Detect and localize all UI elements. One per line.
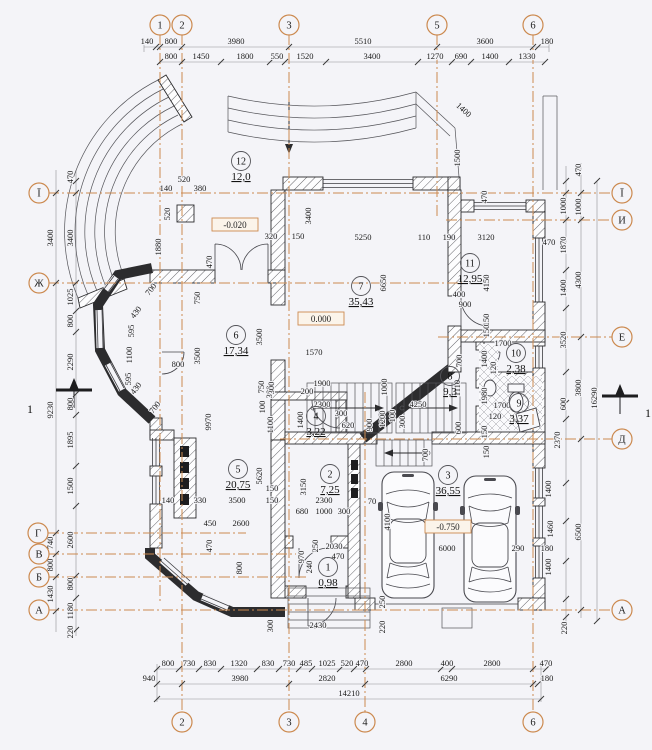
dim-label: 2800: [484, 658, 501, 668]
labels-layer: 1408003980551036001808001450180055015203…: [27, 15, 651, 732]
svg-text:35,43: 35,43: [349, 296, 374, 308]
entry-direction-arrow: [285, 100, 293, 154]
dim-label: 120: [488, 362, 498, 375]
dim-label: 800: [65, 315, 75, 328]
dim-label: 800: [172, 359, 185, 369]
axis-bubble-1: 1: [150, 15, 170, 35]
dim-label: 1000: [558, 198, 568, 215]
dim-label: 1870: [558, 237, 568, 254]
dim-label: 800: [65, 578, 75, 591]
svg-text:Б: Б: [36, 573, 42, 584]
dim-label: 595: [123, 373, 133, 386]
window-garage-east-2: [536, 506, 543, 538]
dim-label: 3400: [65, 230, 75, 247]
dim-label: 1400: [543, 559, 553, 576]
dim-label: 940: [143, 673, 156, 683]
dim-label: 5620: [254, 468, 264, 485]
axis-bubble-6: 6: [523, 15, 543, 35]
axis-bubble-2: 2: [172, 15, 192, 35]
room-label-12: 1212,0: [231, 152, 251, 184]
room-label-5: 520,75: [226, 460, 251, 492]
dim-label: 700: [420, 449, 430, 462]
dim-label: 1570: [306, 347, 323, 357]
dim-label: 220: [559, 622, 569, 635]
svg-text:5: 5: [434, 21, 439, 32]
svg-text:1: 1: [326, 563, 331, 574]
dim-label: 900: [459, 299, 472, 309]
dim-label: 380: [194, 183, 207, 193]
dim-label: 1320: [231, 658, 248, 668]
dim-label: 250: [377, 596, 387, 609]
dim-label: 800: [165, 51, 178, 61]
garage-threshold: [442, 608, 472, 628]
svg-text:Ї: Ї: [620, 188, 624, 200]
svg-text:6: 6: [234, 331, 239, 342]
dim-label: 1900: [314, 378, 331, 388]
svg-text:0,98: 0,98: [318, 577, 338, 589]
dim-label: 1270: [427, 51, 444, 61]
dim-label: 400: [441, 658, 454, 668]
dim-label: 120: [489, 411, 502, 421]
svg-text:Ї: Ї: [37, 188, 41, 200]
dim-label: 800: [234, 562, 244, 575]
dim-label: 3400: [45, 230, 55, 247]
dim-label: 1400: [558, 280, 568, 297]
svg-text:-0.750: -0.750: [436, 522, 460, 532]
axis-bubble-А: А: [29, 600, 49, 620]
dim-label: 700: [454, 355, 464, 368]
dim-label: 220: [65, 626, 75, 639]
dim-label: 6500: [573, 524, 583, 541]
dim-label: 320: [265, 231, 278, 241]
svg-text:5: 5: [236, 465, 241, 476]
dim-label: 1400: [295, 412, 305, 429]
dim-label: 240: [304, 561, 314, 574]
wall-hall-west-a: [271, 190, 285, 270]
dim-label: 330: [194, 495, 207, 505]
dim-label: 1520: [297, 51, 314, 61]
dim-label: 140: [162, 495, 175, 505]
dim-label: 5510: [355, 36, 372, 46]
room-label-2: 27,25: [320, 465, 340, 497]
svg-text:А: А: [618, 606, 626, 617]
room-label-3: 336,55: [436, 466, 461, 498]
dim-label: 2820: [319, 673, 336, 683]
dim-label: 470: [204, 540, 214, 553]
dim-label: 150: [292, 231, 305, 241]
wall-room11-north-b: [526, 200, 545, 212]
svg-text:4: 4: [362, 718, 368, 729]
dim-label: 430: [128, 304, 144, 320]
axis-bubble-2: 2: [172, 712, 192, 732]
dim-label: 180: [541, 543, 554, 553]
room-label-7: 735,43: [349, 277, 374, 309]
dim-label: 470: [540, 658, 553, 668]
axis-bubble-И: И: [612, 210, 632, 230]
terrace-column: [177, 205, 194, 222]
dim-label: 16290: [589, 387, 599, 408]
dim-label: 150: [266, 483, 279, 493]
window-bay-west-mid: [97, 310, 103, 348]
dim-label: 150: [479, 426, 489, 439]
svg-text:36,55: 36,55: [436, 485, 461, 497]
dim-label: 3120: [478, 232, 495, 242]
room-label-6: 617,34: [224, 326, 249, 358]
flue: [351, 488, 358, 498]
section-label: 1: [645, 406, 651, 420]
svg-text:3: 3: [286, 718, 291, 729]
dim-label: 595: [126, 325, 136, 338]
svg-text:Е: Е: [619, 333, 625, 344]
dim-label: 730: [283, 658, 296, 668]
svg-text:12: 12: [236, 157, 246, 168]
elevation-mark: -0.020: [212, 218, 258, 231]
dim-label: 470: [479, 191, 489, 204]
dim-label: 2800: [396, 658, 413, 668]
dim-label: 1880: [153, 239, 163, 256]
axis-bubble-4: 4: [355, 712, 375, 732]
dim-label: 2370: [552, 432, 562, 449]
dim-label: 4150: [481, 275, 491, 292]
svg-text:6: 6: [530, 21, 535, 32]
dim-label: 150: [481, 446, 491, 459]
dim-label: 1500: [452, 150, 462, 167]
dim-label: 485: [300, 658, 313, 668]
dim-label: 3500: [254, 329, 264, 346]
dim-label: 300: [335, 408, 348, 418]
dim-label: 14210: [338, 688, 359, 698]
dim-label: 680: [296, 506, 309, 516]
dim-label: 690: [455, 51, 468, 61]
svg-text:12,95: 12,95: [458, 273, 483, 285]
dim-label: 1330: [519, 51, 536, 61]
svg-text:20,75: 20,75: [226, 479, 251, 491]
floor-plan-drawing: 1408003980551036001808001450180055015203…: [0, 0, 652, 750]
room-label-1: 10,98: [318, 558, 338, 590]
axis-bubble-Ж: Ж: [29, 273, 49, 293]
wall-room11-north-a: [460, 200, 474, 212]
dim-label: 1025: [65, 289, 75, 306]
dim-label: 470: [356, 658, 369, 668]
dim-label: 1895: [65, 432, 75, 449]
dim-label: 1460: [545, 521, 555, 538]
dim-label: 3980: [232, 673, 249, 683]
door-terrace-double: [215, 244, 268, 270]
dim-label: 1100: [265, 417, 275, 434]
axis-bubble-Б: Б: [29, 567, 49, 587]
dim-label: 1000: [573, 199, 583, 216]
axis-bubble-В: В: [29, 544, 49, 564]
dim-label: 2300: [316, 495, 333, 505]
dim-label: 470: [573, 164, 583, 177]
dim-label: 3400: [364, 51, 381, 61]
wall-east: [533, 212, 545, 238]
dim-label: 2600: [65, 532, 75, 549]
floor-plan-sheet: 1408003980551036001808001450180055015203…: [0, 0, 652, 750]
axis-bubble-Ї: Ї: [612, 183, 632, 203]
svg-text:Д: Д: [618, 435, 625, 446]
section-mark-right: [602, 384, 638, 414]
axis-bubble-3: 3: [279, 712, 299, 732]
dim-label: 9230: [45, 402, 55, 419]
dim-label: 250: [310, 540, 320, 553]
dim-label: 6650: [378, 275, 388, 292]
dim-label: 830: [262, 658, 275, 668]
dim-label: 800: [162, 658, 175, 668]
flue: [351, 460, 358, 470]
car-right: [460, 476, 520, 602]
dim-label: 2030: [326, 541, 343, 551]
svg-text:10: 10: [511, 349, 521, 360]
flue: [351, 474, 358, 484]
elevation-mark: 0.000: [298, 312, 344, 325]
dim-label: 1500: [65, 478, 75, 495]
dim-label: 290: [512, 543, 525, 553]
dim-label: 140: [160, 183, 173, 193]
dim-label: 1400: [482, 51, 499, 61]
section-label: 1: [27, 402, 33, 416]
svg-text:9,3: 9,3: [443, 386, 457, 398]
dim-label: 400: [453, 289, 466, 299]
svg-text:Г: Г: [35, 529, 41, 540]
dim-label: 1700: [494, 400, 511, 410]
svg-text:3,37: 3,37: [509, 413, 529, 425]
axis-bubble-Е: Е: [612, 327, 632, 347]
axis-bubble-5: 5: [427, 15, 447, 35]
dim-label: 110: [418, 232, 430, 242]
dim-label: 750: [256, 381, 266, 394]
dim-label: 2290: [65, 354, 75, 371]
dim-label: 180: [541, 673, 554, 683]
dim-label: 730: [183, 658, 196, 668]
svg-text:2,38: 2,38: [506, 363, 526, 375]
svg-text:2: 2: [328, 470, 333, 481]
axis-bubble-Г: Г: [28, 523, 48, 543]
dim-label: 3600: [477, 36, 494, 46]
svg-text:3,22: 3,22: [306, 426, 325, 438]
wall-hall-west-b: [271, 283, 285, 305]
dim-label: 4250: [410, 399, 427, 409]
dim-label: 3150: [298, 479, 308, 496]
dim-label: 750: [192, 292, 202, 305]
axis-bubble-А: А: [612, 600, 632, 620]
svg-text:2: 2: [179, 718, 184, 729]
svg-text:7: 7: [359, 282, 364, 293]
dim-label: 3800: [573, 380, 583, 397]
dim-label: 220: [377, 621, 387, 634]
dim-label: 300: [397, 416, 407, 429]
svg-text:6: 6: [530, 718, 535, 729]
wall-room5-east: [271, 440, 285, 598]
dim-label: 2600: [233, 518, 250, 528]
window-room5-west-1: [153, 438, 160, 466]
axis-bubble-Д: Д: [612, 429, 632, 449]
dim-label: 600: [453, 422, 463, 435]
dim-label: 550: [271, 51, 284, 61]
svg-text:7,25: 7,25: [320, 484, 340, 496]
dim-label: 70: [368, 496, 377, 506]
svg-text:0.000: 0.000: [311, 314, 332, 324]
dim-label: 3520: [558, 332, 568, 349]
window-room11-east: [536, 238, 543, 302]
dim-label: 470: [204, 256, 214, 269]
dim-label: 300: [266, 382, 276, 395]
dim-label: 1000: [316, 506, 333, 516]
axis-bubble-6: 6: [523, 712, 543, 732]
dim-label: 6290: [441, 673, 458, 683]
svg-text:9: 9: [517, 399, 522, 410]
axis-bubble-3: 3: [279, 15, 299, 35]
dim-label: 1400: [543, 481, 553, 498]
svg-text:8: 8: [448, 372, 453, 383]
svg-text:4: 4: [314, 412, 319, 423]
dim-label: 3400: [303, 208, 313, 225]
dim-label: 3500: [192, 348, 202, 365]
dim-label: 3980: [228, 36, 245, 46]
window-hall-north: [323, 178, 413, 189]
window-garage-east-1: [536, 468, 543, 498]
svg-text:В: В: [35, 550, 42, 561]
dim-label: 180: [541, 36, 554, 46]
svg-text:И: И: [618, 216, 626, 227]
terrace-curved-steps: [228, 92, 557, 190]
dim-label: 1450: [193, 51, 210, 61]
car-left: [378, 472, 438, 598]
dim-label: 800: [65, 398, 75, 411]
dim-label: 900: [364, 419, 374, 432]
dim-label: 1980: [479, 388, 489, 405]
dim-label: 1200: [377, 411, 387, 428]
dim-label: 520: [162, 208, 172, 221]
dim-label: 100: [387, 410, 397, 423]
dim-label: 5250: [355, 232, 372, 242]
axis-bubble-Ї: Ї: [29, 183, 49, 203]
svg-text:11: 11: [465, 259, 475, 270]
dim-label: 300: [338, 506, 351, 516]
dim-label: 4300: [573, 272, 583, 289]
svg-text:Ж: Ж: [34, 279, 44, 290]
dim-label: 200: [301, 386, 314, 396]
dim-label: 470: [543, 237, 556, 247]
dim-label: 140: [141, 36, 154, 46]
dim-label: 150: [481, 314, 491, 327]
dim-label: 1400: [454, 100, 473, 119]
dim-label: 1025: [319, 658, 336, 668]
room-label-10: 102,38: [506, 344, 526, 376]
dim-label: 1100: [124, 347, 134, 364]
dim-label: 2300: [314, 399, 331, 409]
dim-label: 3500: [229, 495, 246, 505]
svg-text:-0.020: -0.020: [223, 220, 247, 230]
dim-label: 190: [443, 232, 456, 242]
dim-label: 470: [65, 171, 75, 184]
dim-label: 100: [257, 401, 267, 414]
window-room5-west-2: [153, 476, 160, 504]
dim-label: 150: [481, 325, 491, 338]
wall-terrace-south-b: [268, 270, 285, 283]
wall-stub: [150, 430, 174, 440]
dim-label: 1800: [237, 51, 254, 61]
svg-text:А: А: [35, 606, 43, 617]
dim-label: 520: [341, 658, 354, 668]
dim-label: 2430: [310, 620, 327, 630]
dim-label: 1180: [65, 603, 75, 620]
dim-label: 830: [204, 658, 217, 668]
wall-garage-south-b: [518, 598, 545, 610]
dim-label: 620: [342, 420, 355, 430]
dim-label: 6000: [439, 543, 456, 553]
dim-label: 1430: [45, 586, 55, 603]
window-room10-east: [536, 346, 543, 368]
dim-label: 520: [178, 174, 191, 184]
dim-label: 150: [266, 495, 279, 505]
dim-label: 600: [558, 398, 568, 411]
dim-label: 9970: [203, 414, 213, 431]
dim-label: 450: [204, 518, 217, 528]
svg-text:17,34: 17,34: [224, 345, 249, 357]
dim-label: 1000: [379, 379, 389, 396]
svg-text:2: 2: [179, 21, 184, 32]
svg-text:1: 1: [157, 21, 162, 32]
dim-label: 300: [265, 620, 275, 633]
dim-label: 4100: [382, 514, 392, 531]
elevation-mark: -0.750: [425, 520, 471, 533]
dim-label: 800: [165, 36, 178, 46]
svg-text:3: 3: [446, 471, 451, 482]
svg-text:3: 3: [286, 21, 291, 32]
svg-text:12,0: 12,0: [231, 171, 251, 183]
